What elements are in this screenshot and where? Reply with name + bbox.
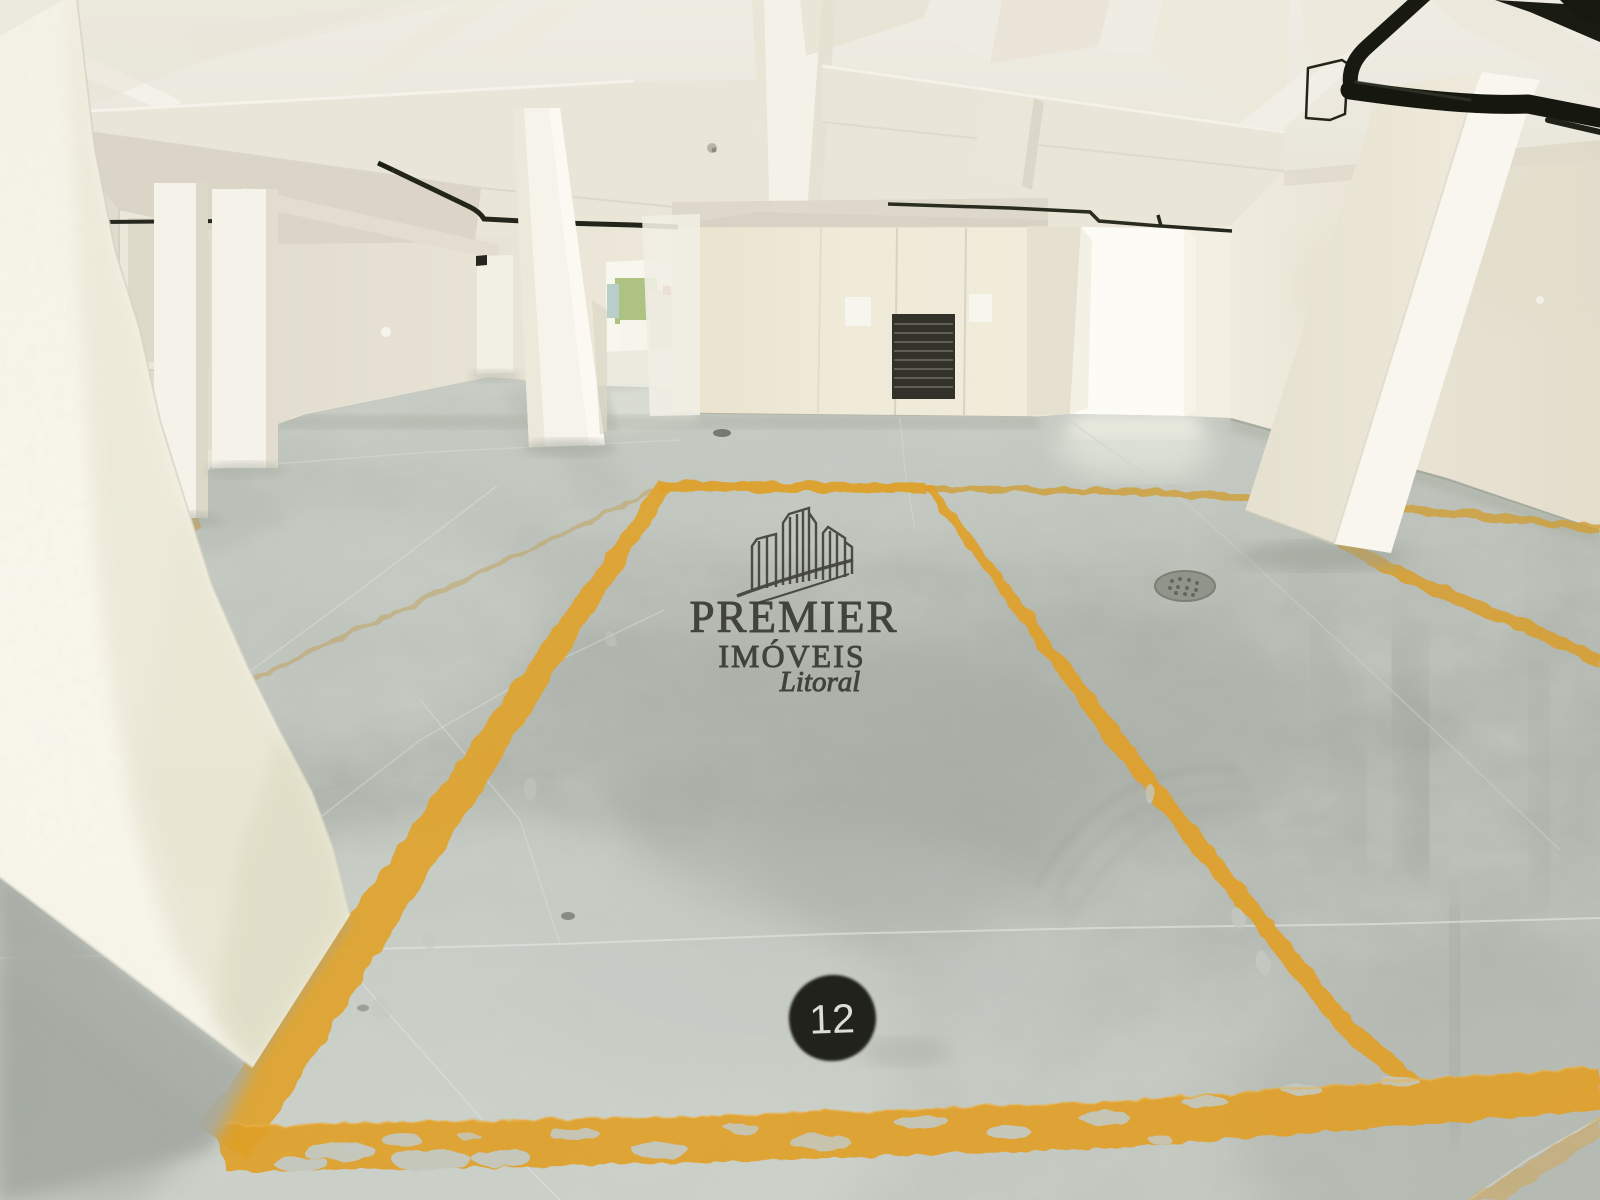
svg-text:12: 12 — [808, 995, 855, 1043]
svg-text:PREMIER: PREMIER — [689, 592, 898, 642]
svg-text:Litoral: Litoral — [779, 666, 861, 698]
